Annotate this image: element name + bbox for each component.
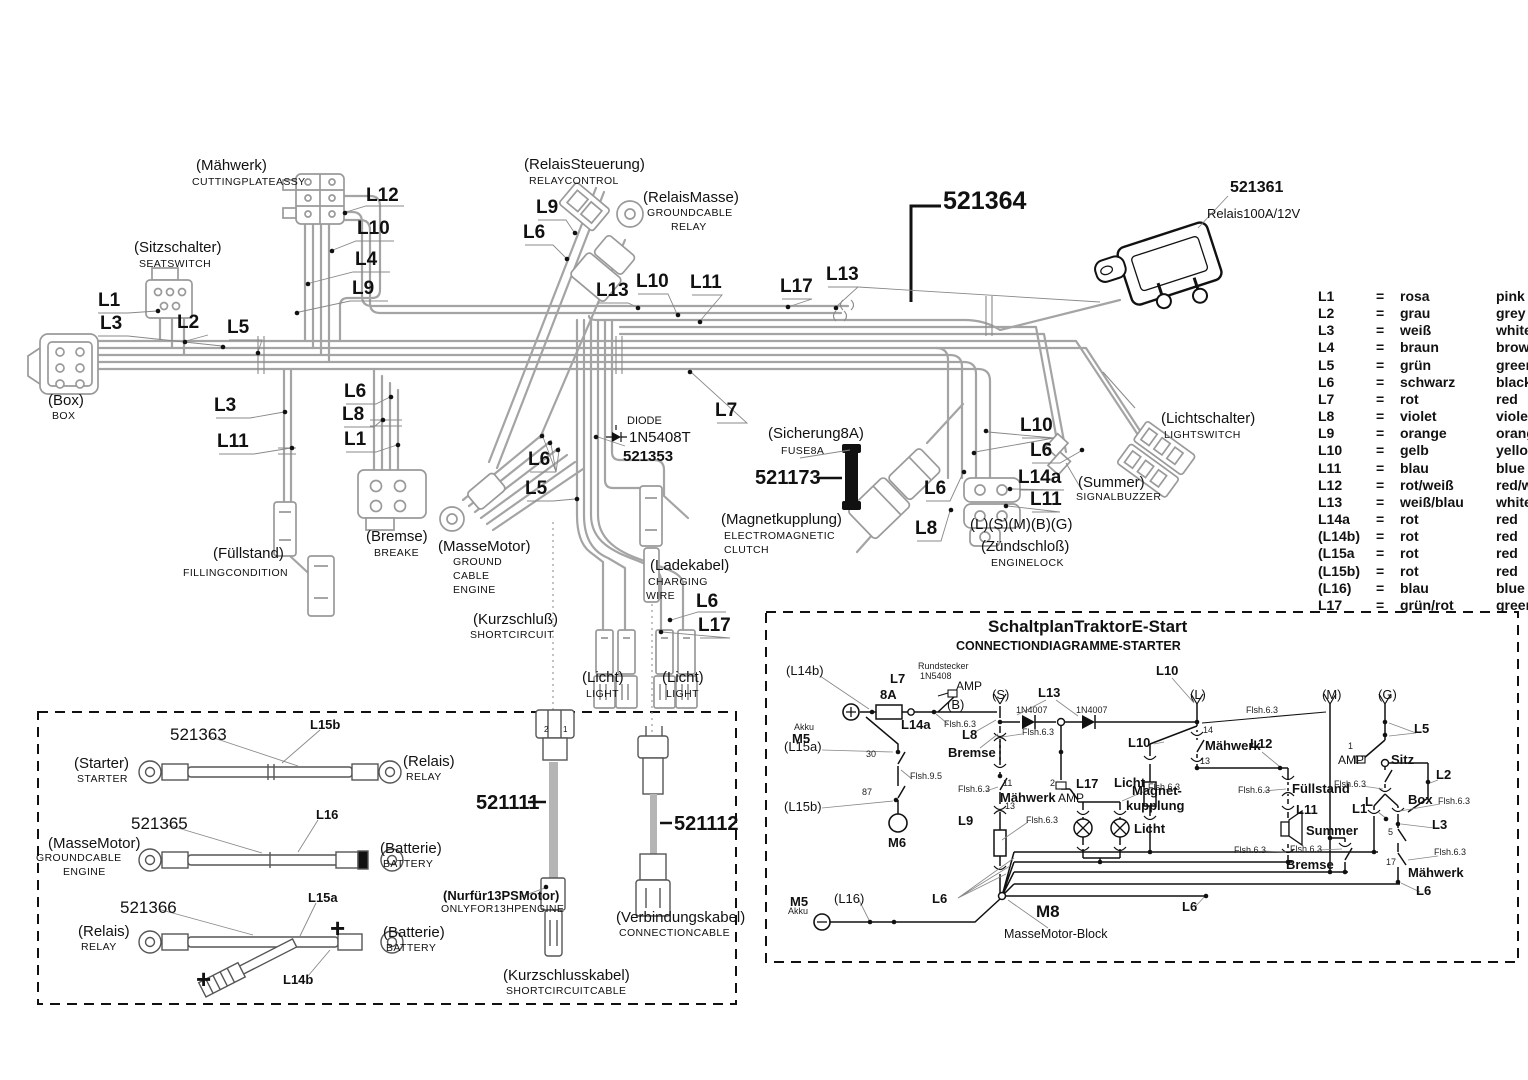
legend-code: L5 <box>1318 357 1376 374</box>
diode-icon <box>606 425 627 442</box>
legend-eq: = <box>1376 563 1400 580</box>
wire-color-legend: L1=rosapink L2=graugrey L3=weißwhite L4=… <box>1318 288 1528 614</box>
relay-spec-label: Relais100A/12V <box>1207 207 1300 221</box>
groundcable-label-en2: CABLE <box>453 571 489 582</box>
node-label-b: (B) <box>947 698 964 712</box>
flsh63-label: Flsh.6.3 <box>1022 728 1054 737</box>
node-label-l15b: (L15b) <box>784 800 822 814</box>
legend-german: grün <box>1400 357 1496 374</box>
legend-german: rot <box>1400 545 1496 562</box>
legend-english: white <box>1496 322 1528 339</box>
wire-label-l10b: L10 <box>636 272 669 292</box>
rundstecker-type-label: 1N5408 <box>920 672 952 681</box>
starter-label-de: (Starter) <box>74 756 129 772</box>
legend-code: (L15b) <box>1318 563 1376 580</box>
flsh63-label: Flsh.6.3 <box>958 785 990 794</box>
legend-eq: = <box>1376 288 1400 305</box>
part-number-521366: 521366 <box>120 899 177 917</box>
terminal-13-label: 13 <box>1005 802 1015 811</box>
battery1-label-en: BATTERY <box>383 859 433 870</box>
legend-eq: = <box>1376 374 1400 391</box>
flsh95-label: Flsh.9.5 <box>910 772 942 781</box>
wire-label-l6e: L6 <box>1030 441 1052 461</box>
legend-english: red <box>1496 391 1528 408</box>
legend-eq: = <box>1376 528 1400 545</box>
legend-german: schwarz <box>1400 374 1496 391</box>
enginelock-label-de: (Zündschloß) <box>981 539 1069 555</box>
wiring-diagram-page: (Mähwerk) CUTTINGPLATEASSY L12 L10 L4 L9… <box>0 0 1528 1080</box>
wire-label-l11c: L11 <box>1030 490 1062 510</box>
flsh63-label: Flsh.6.3 <box>1234 846 1266 855</box>
groundcable2-label-en2: ENGINE <box>63 867 106 878</box>
relaycontrol-label-de: (RelaisSteuerung) <box>524 157 645 173</box>
legend-german: rot <box>1400 563 1496 580</box>
clutch-label-de: (Magnetkupplung) <box>721 512 842 528</box>
legend-english: blue <box>1496 460 1528 477</box>
legend-german: orange <box>1400 425 1496 442</box>
shortcircuitcable-label-en: SHORTCIRCUITCABLE <box>506 986 626 997</box>
legend-code: L3 <box>1318 322 1376 339</box>
lightswitch-label-en: LIGHTSWITCH <box>1164 430 1241 441</box>
node-label-l15a: (L15a) <box>784 740 822 754</box>
terminal-5-label: 5 <box>1388 828 1393 837</box>
flsh63-label: Flsh.6.3 <box>1434 848 1466 857</box>
legend-english: green/red <box>1496 597 1528 614</box>
wire-label-l11b: L11 <box>690 273 722 293</box>
flsh63-label: Flsh.6.3 <box>1334 780 1366 789</box>
wire-label-l6c: L6 <box>528 450 550 470</box>
legend-english: white/blue <box>1496 494 1528 511</box>
legend-eq: = <box>1376 597 1400 614</box>
legend-german: rot <box>1400 528 1496 545</box>
legend-english: red <box>1496 511 1528 528</box>
relay1-label-en: RELAY <box>406 772 442 783</box>
light1-label-de: (Licht) <box>582 670 624 686</box>
terminal-13-label: 13 <box>1200 757 1210 766</box>
wire-label-l16: L16 <box>316 808 338 822</box>
diode-1n4007-label: 1N4007 <box>1016 706 1048 715</box>
legend-german: rot <box>1400 391 1496 408</box>
amp-label: AMP <box>956 680 982 693</box>
battery2-label-en: BATTERY <box>386 943 436 954</box>
part-number-521112: 521112 <box>674 814 739 835</box>
wire-label-l11: L11 <box>217 432 249 452</box>
part-number-521363: 521363 <box>170 726 227 744</box>
legend-eq: = <box>1376 511 1400 528</box>
node-label-s: (S) <box>992 688 1009 702</box>
circuit-label-l8: L8 <box>962 728 977 742</box>
legend-eq: = <box>1376 460 1400 477</box>
l-connector-label: L <box>1365 795 1373 809</box>
only13hp-label-en: ONLYFOR13HPENGINE <box>441 904 564 915</box>
terminal-30-label: 30 <box>866 750 876 759</box>
licht-label: Licht <box>1134 822 1165 836</box>
legend-english: black <box>1496 374 1528 391</box>
node-label-g: (G) <box>1378 688 1397 702</box>
legend-code: (L16) <box>1318 580 1376 597</box>
shortcircuit-label-en: SHORTCIRCUIT <box>470 630 554 641</box>
legend-english: red <box>1496 528 1528 545</box>
wire-label-l5: L5 <box>227 318 249 338</box>
legend-code: L10 <box>1318 442 1376 459</box>
legend-eq: = <box>1376 477 1400 494</box>
part-number-521364: 521364 <box>943 188 1026 214</box>
m6-label: M6 <box>888 836 906 850</box>
wire-label-l12: L12 <box>366 186 399 206</box>
legend-german: violet <box>1400 408 1496 425</box>
legend-eq: = <box>1376 391 1400 408</box>
chargingwire-label-de: (Ladekabel) <box>650 558 729 574</box>
connectioncable-label-de: (Verbindungskabel) <box>616 910 745 926</box>
groundcable-label-en3: ENGINE <box>453 585 496 596</box>
wire-label-l10: L10 <box>357 219 390 239</box>
relay2-label-de: (Relais) <box>78 924 130 940</box>
relaisground-label-en2: RELAY <box>671 222 707 233</box>
circuit-label-l14a: L14a <box>901 718 931 732</box>
legend-german: rot/weiß <box>1400 477 1496 494</box>
maehwerk-label-de: (Mähwerk) <box>196 158 267 174</box>
starter-label-en: STARTER <box>77 774 128 785</box>
wire-label-l13: L13 <box>596 281 629 301</box>
part-number-521361: 521361 <box>1230 180 1283 197</box>
wire-label-l13b: L13 <box>826 265 859 285</box>
legend-english: orange <box>1496 425 1528 442</box>
terminal-11-label: 11 <box>1003 779 1012 788</box>
legend-german: weiß/blau <box>1400 494 1496 511</box>
circuit-label-l6: L6 <box>932 892 947 906</box>
flsh63-label: Flsh.6.3 <box>1238 786 1270 795</box>
terminal-1-label: 1 <box>1348 742 1353 751</box>
connector-pin-label: 1 <box>563 726 567 734</box>
legend-code: (L14b) <box>1318 528 1376 545</box>
flsh63-label: Flsh.6.3 <box>1438 797 1470 806</box>
legend-german: weiß <box>1400 322 1496 339</box>
wire-label-l2: L2 <box>177 313 199 333</box>
legend-eq: = <box>1376 545 1400 562</box>
legend-code: L11 <box>1318 460 1376 477</box>
relaisground-label-de: (RelaisMasse) <box>643 190 739 206</box>
circuit-label-l11: L11 <box>1296 803 1318 817</box>
legend-code: L7 <box>1318 391 1376 408</box>
diode-1n4007-label: 1N4007 <box>1076 706 1108 715</box>
legend-german: rosa <box>1400 288 1496 305</box>
groundcable-label-en1: GROUND <box>453 557 502 568</box>
only13hp-label-de: (Nurfür13PSMotor) <box>443 889 559 903</box>
legend-german: rot <box>1400 511 1496 528</box>
node-label-l: (L) <box>1190 688 1206 702</box>
legend-english: blue <box>1496 580 1528 597</box>
wire-label-l8: L8 <box>342 405 364 425</box>
legend-english: red <box>1496 563 1528 580</box>
bremse-label: Bremse <box>1286 858 1334 872</box>
m8-label: M8 <box>1036 903 1060 921</box>
wire-label-l6b: L6 <box>523 223 545 243</box>
legend-german: blau <box>1400 460 1496 477</box>
fillingcondition-label-en: FILLINGCONDITION <box>183 568 288 579</box>
circuit-label-l12: L12 <box>1250 737 1272 751</box>
wire-label-l9b: L9 <box>536 198 558 218</box>
wire-label-l4: L4 <box>355 250 377 270</box>
node-label-l14b: (L14b) <box>786 664 824 678</box>
circuit-label-l9: L9 <box>958 814 973 828</box>
enginelock-pins-label: (L)(S)(M)(B)(G) <box>970 517 1072 533</box>
summer-label: Summer <box>1306 824 1358 838</box>
terminal-17-label: 17 <box>1386 858 1396 867</box>
chargingwire-label-en1: CHARGING <box>648 577 708 588</box>
amp-label: AMP <box>1338 754 1364 767</box>
buzzer-label-en: SIGNALBUZZER <box>1076 492 1161 503</box>
flsh63-label: Flsh.6.3 <box>1246 706 1278 715</box>
relay2-label-en: RELAY <box>81 942 117 953</box>
amp-label: AMP <box>1058 792 1084 805</box>
legend-german: grün/rot <box>1400 597 1496 614</box>
box-label-de: (Box) <box>48 393 84 409</box>
legend-code: L1 <box>1318 288 1376 305</box>
groundcable-label-de: (MasseMotor) <box>438 539 531 555</box>
legend-english: pink <box>1496 288 1528 305</box>
legend-code: L8 <box>1318 408 1376 425</box>
legend-code: L17 <box>1318 597 1376 614</box>
part-number-521173: 521173 <box>755 468 821 489</box>
terminal-2-label: 2 <box>1050 779 1055 788</box>
maehwerk-switch-label: Mähwerk <box>1408 866 1464 880</box>
akku-label: Akku <box>788 907 808 916</box>
wire-label-l8b: L8 <box>915 519 937 539</box>
legend-code: (L15a <box>1318 545 1376 562</box>
relay1-label-de: (Relais) <box>403 754 455 770</box>
wire-label-l17b: L17 <box>698 616 731 636</box>
wire-label-l6: L6 <box>344 382 366 402</box>
massemotor-block-label: MasseMotor-Block <box>1004 928 1108 941</box>
circuit-label-l13: L13 <box>1038 686 1060 700</box>
bremse-label: Bremse <box>948 746 996 760</box>
part-number-521353: 521353 <box>623 449 673 465</box>
groundcable2-label-de: (MasseMotor) <box>48 836 141 852</box>
wire-label-l14b: L14b <box>283 973 313 987</box>
groundcable2-label-en1: GROUNDCABLE <box>36 853 122 864</box>
circuit-label-l5: L5 <box>1414 722 1429 736</box>
legend-english: green <box>1496 357 1528 374</box>
legend-english: grey <box>1496 305 1528 322</box>
light2-label-en: LIGHT <box>666 689 699 700</box>
wire-label-l10c: L10 <box>1020 416 1053 436</box>
wire-label-l7: L7 <box>715 401 737 421</box>
seatswitch-label-de: (Sitzschalter) <box>134 240 222 256</box>
legend-code: L13 <box>1318 494 1376 511</box>
brake-label-de: (Bremse) <box>366 529 428 545</box>
circuit-label-l17: L17 <box>1076 777 1098 791</box>
magnetclutch-label1: Magnet- <box>1132 784 1182 798</box>
connectioncable-label-en: CONNECTIONCABLE <box>619 928 730 939</box>
fuse-label-de: (Sicherung8A) <box>768 426 864 442</box>
circuit-label-l3: L3 <box>1432 818 1447 832</box>
seatswitch-label-en: SEATSWITCH <box>139 259 211 270</box>
wire-label-l3: L3 <box>100 314 122 334</box>
legend-code: L14a <box>1318 511 1376 528</box>
diode-type-label: 1N5408T <box>629 430 691 446</box>
wire-label-l14a: L14a <box>1018 468 1061 488</box>
legend-code: L6 <box>1318 374 1376 391</box>
circuit-label-l7: L7 <box>890 672 905 686</box>
flsh63-label: Flsh.6.3 <box>1290 845 1322 854</box>
wire-label-l1b: L1 <box>344 430 366 450</box>
legend-german: braun <box>1400 339 1496 356</box>
legend-eq: = <box>1376 425 1400 442</box>
battery1-label-de: (Batterie) <box>380 841 442 857</box>
schematic-title-de: SchaltplanTraktorE-Start <box>988 618 1187 636</box>
chargingwire-label-en2: WIRE <box>646 591 675 602</box>
legend-english: brown <box>1496 339 1528 356</box>
relaycontrol-label-en: RELAYCONTROL <box>529 176 619 187</box>
circuit-label-l6: L6 <box>1416 884 1431 898</box>
box-label: Box <box>1408 793 1433 807</box>
diode-label: DIODE <box>627 416 662 428</box>
plus-terminal-icon: + <box>330 915 345 942</box>
sitz-label: Sitz <box>1391 753 1414 767</box>
shortcircuit-label-de: (Kurzschluß) <box>473 612 558 628</box>
light2-label-de: (Licht) <box>662 670 704 686</box>
wire-label-l9: L9 <box>352 279 374 299</box>
legend-eq: = <box>1376 494 1400 511</box>
legend-eq: = <box>1376 339 1400 356</box>
lightswitch-label-de: (Lichtschalter) <box>1161 411 1255 427</box>
flsh63-label: Flsh.6.3 <box>1026 816 1058 825</box>
schematic-title-en: CONNECTIONDIAGRAMME-STARTER <box>956 640 1181 653</box>
fuse-label-en: FUSE8A <box>781 446 824 457</box>
part-number-521111: 521111 <box>476 793 539 814</box>
legend-eq: = <box>1376 305 1400 322</box>
plus-terminal-icon: + <box>196 966 211 993</box>
maehwerk-label-en: CUTTINGPLATEASSY <box>192 177 306 188</box>
legend-code: L2 <box>1318 305 1376 322</box>
magnetclutch-label2: kupplung <box>1126 799 1185 813</box>
circuit-label-l10: L10 <box>1156 664 1178 678</box>
fuse-8a-label: 8A <box>880 688 897 702</box>
node-label-l16: (L16) <box>834 892 864 906</box>
legend-code: L9 <box>1318 425 1376 442</box>
wire-label-l6f: L6 <box>924 479 946 499</box>
box-label-en: BOX <box>52 411 75 422</box>
legend-code: L4 <box>1318 339 1376 356</box>
clutch-label-en1: ELECTROMAGNETIC <box>724 531 835 542</box>
wire-label-l1: L1 <box>98 291 120 311</box>
light1-label-en: LIGHT <box>586 689 619 700</box>
circuit-label-l10b: L10 <box>1128 736 1150 750</box>
wire-label-l15b: L15b <box>310 718 340 732</box>
enginelock-label-en: ENGINELOCK <box>991 558 1064 569</box>
terminal-87-label: 87 <box>862 788 872 797</box>
legend-english: violet <box>1496 408 1528 425</box>
brake-label-en: BREAKE <box>374 548 419 559</box>
clutch-label-en2: CLUTCH <box>724 545 769 556</box>
relaisground-label-en1: GROUNDCABLE <box>647 208 733 219</box>
legend-eq: = <box>1376 357 1400 374</box>
part-number-521365: 521365 <box>131 815 188 833</box>
legend-german: blau <box>1400 580 1496 597</box>
legend-german: grau <box>1400 305 1496 322</box>
legend-eq: = <box>1376 322 1400 339</box>
buzzer-label-de: (Summer) <box>1078 475 1145 491</box>
legend-english: red <box>1496 545 1528 562</box>
wire-label-l6d: L6 <box>696 592 718 612</box>
legend-german: gelb <box>1400 442 1496 459</box>
legend-english: red/white <box>1496 477 1528 494</box>
fillingcondition-label-de: (Füllstand) <box>213 546 284 562</box>
shortcircuitcable-label-de: (Kurzschlusskabel) <box>503 968 630 984</box>
connector-pin-label: 2 <box>544 726 548 734</box>
legend-english: yellow <box>1496 442 1528 459</box>
battery2-label-de: (Batterie) <box>383 925 445 941</box>
wire-label-l17: L17 <box>780 277 813 297</box>
wire-label-l5b: L5 <box>525 479 547 499</box>
legend-eq: = <box>1376 580 1400 597</box>
wire-label-l3b: L3 <box>214 396 236 416</box>
legend-code: L12 <box>1318 477 1376 494</box>
wire-label-l15a: L15a <box>308 891 338 905</box>
legend-eq: = <box>1376 408 1400 425</box>
circuit-label-l2: L2 <box>1436 768 1451 782</box>
terminal-14-label: 14 <box>1203 726 1213 735</box>
relay-icon <box>1091 221 1229 331</box>
circuit-label-l6: L6 <box>1182 900 1197 914</box>
node-label-m: (M) <box>1322 688 1342 702</box>
legend-eq: = <box>1376 442 1400 459</box>
